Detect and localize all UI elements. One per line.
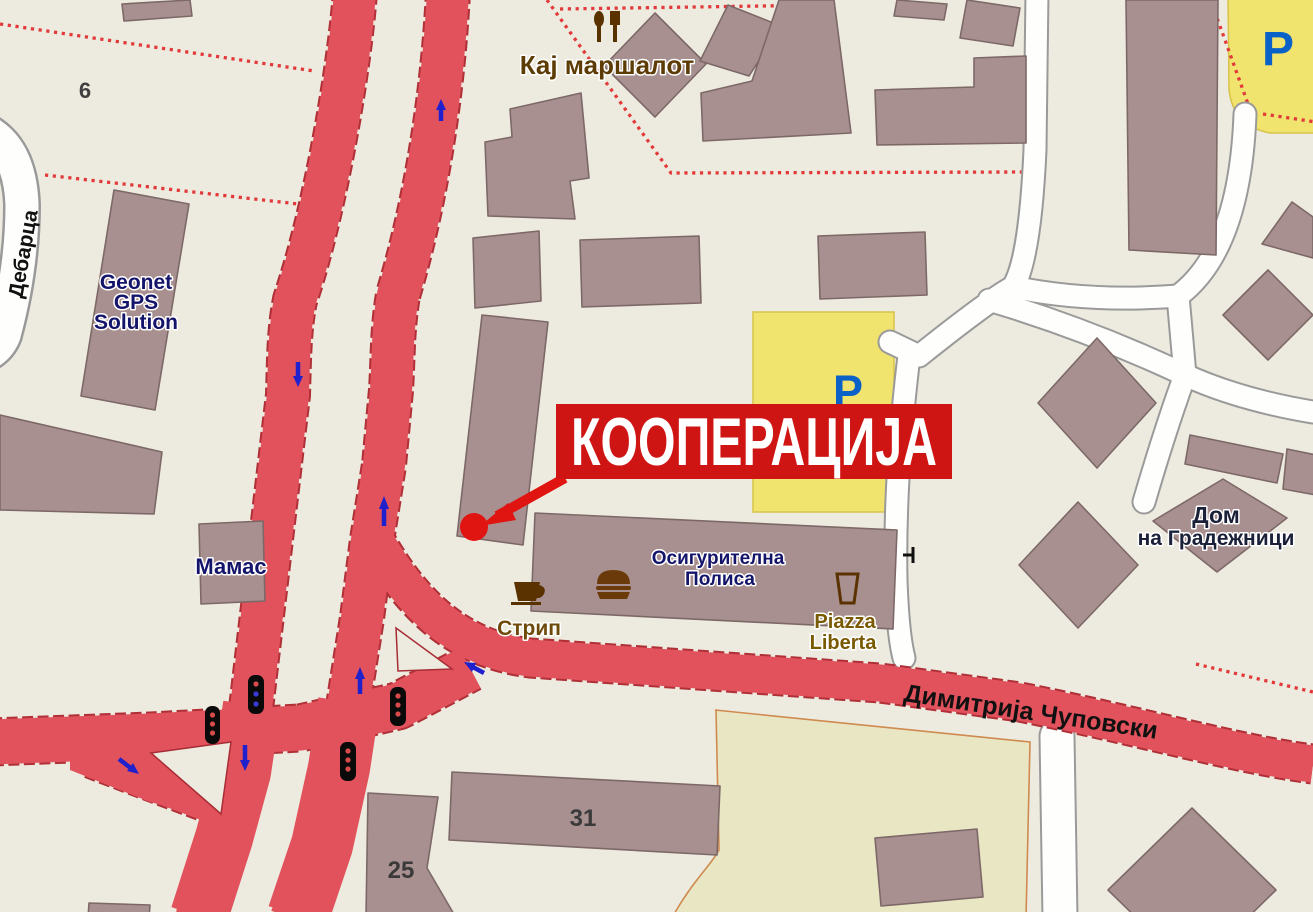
svg-text:25: 25 [388, 857, 415, 884]
svg-text:P: P [1262, 23, 1294, 76]
svg-text:Solution: Solution [94, 311, 178, 334]
svg-text:Дом: Дом [1192, 502, 1239, 528]
svg-text:6: 6 [79, 78, 91, 103]
svg-text:на Градежници: на Градежници [1138, 527, 1295, 550]
svg-text:Piazza: Piazza [814, 611, 876, 633]
svg-text:Полиса: Полиса [685, 569, 755, 590]
svg-text:Liberta: Liberta [810, 632, 878, 654]
svg-text:КООПЕРАЦИЈА: КООПЕРАЦИЈА [571, 405, 937, 480]
svg-text:Осигурителна: Осигурителна [652, 548, 785, 569]
svg-text:Стрип: Стрип [497, 617, 561, 640]
svg-text:Мамас: Мамас [195, 554, 266, 579]
svg-text:Кај маршалот: Кај маршалот [520, 50, 695, 80]
svg-text:31: 31 [570, 805, 597, 832]
